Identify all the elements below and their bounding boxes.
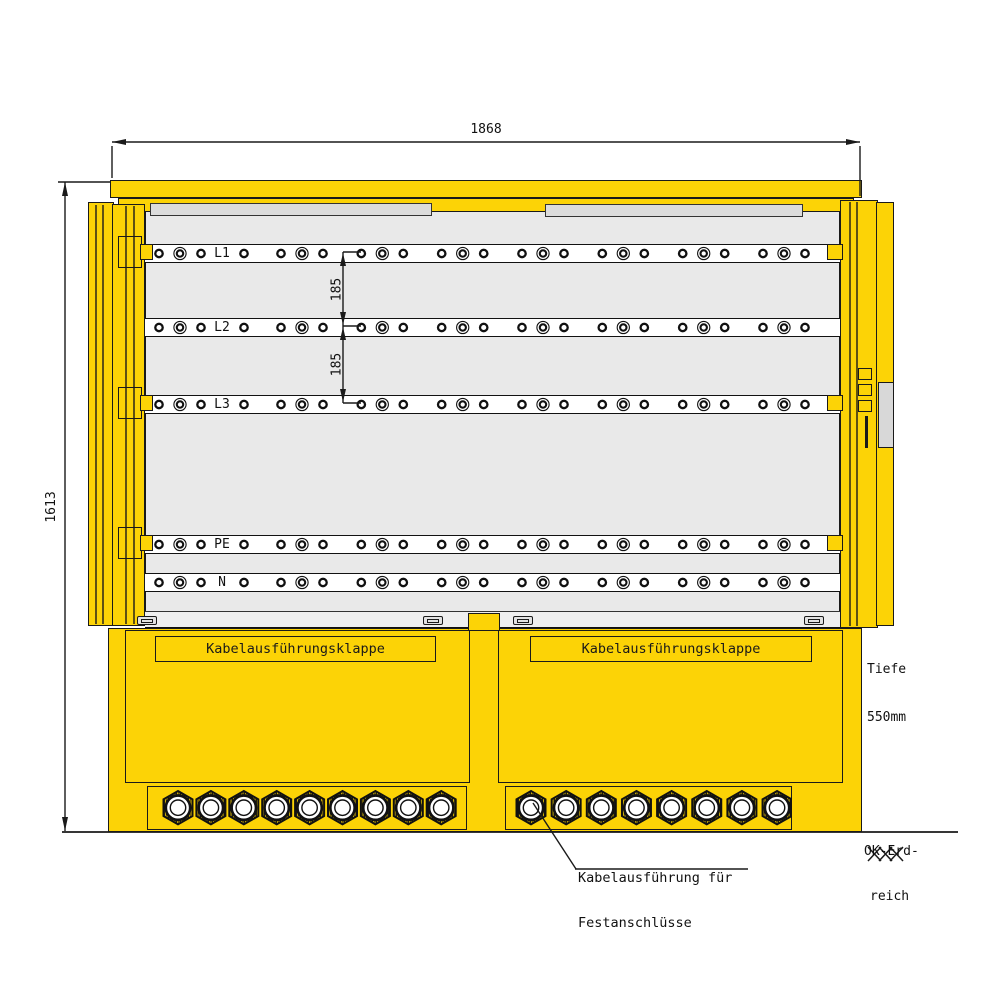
cable-gland — [692, 791, 721, 824]
interior-top-rail-left — [150, 203, 432, 216]
hinge-left — [118, 527, 142, 559]
cable-gland — [262, 791, 291, 824]
cable-gland — [328, 791, 357, 824]
depth-note-line2: 550mm — [867, 710, 906, 726]
flap-latch[interactable] — [513, 616, 533, 625]
dim-spacing-label-2: 185 — [330, 338, 345, 392]
depth-note: Tiefe 550mm — [867, 630, 906, 758]
gland-row — [147, 786, 467, 830]
lock-block-1 — [858, 368, 872, 380]
flap-latch[interactable] — [137, 616, 157, 625]
busbar-holes — [145, 396, 840, 413]
cable-gland — [196, 791, 225, 824]
hinge-left-tab — [140, 395, 153, 411]
cable-gland — [295, 791, 324, 824]
callout-line2: Festanschlüsse — [578, 916, 732, 931]
door-handle — [878, 382, 894, 448]
gland-row — [505, 786, 792, 830]
ground-note-line2: reich — [864, 889, 919, 904]
busbar-label: N — [203, 575, 241, 590]
hinge-left — [118, 236, 142, 268]
busbar-L1: L1 — [145, 244, 840, 263]
cable-gland — [361, 791, 390, 824]
left-door-edge — [88, 202, 114, 626]
interior-top-rail-right — [545, 204, 803, 217]
cable-gland — [587, 791, 616, 824]
callout-line1: Kabelausführung für — [578, 871, 732, 886]
busbar-label: PE — [203, 537, 241, 552]
cable-flap-left[interactable]: Kabelausführungsklappe — [155, 636, 436, 662]
busbar-L3: L3 — [145, 395, 840, 414]
cabinet-roof — [110, 180, 862, 198]
busbar-N: N — [145, 573, 840, 592]
busbar-holes — [145, 574, 840, 591]
cable-gland — [727, 791, 756, 824]
busbar-holes — [145, 245, 840, 262]
cable-gland — [427, 791, 456, 824]
flap-latch[interactable] — [423, 616, 443, 625]
busbar-label: L1 — [203, 246, 241, 261]
flap-latch[interactable] — [804, 616, 824, 625]
hinge-left-tab — [140, 535, 153, 551]
hinge-left — [118, 387, 142, 419]
depth-note-line1: Tiefe — [867, 662, 906, 678]
dim-width-label: 1868 — [440, 122, 532, 137]
busbar-holes — [145, 536, 840, 553]
cable-gland — [657, 791, 686, 824]
callout-note: Kabelausführung für Festanschlüsse — [578, 841, 732, 961]
cable-gland — [622, 791, 651, 824]
cable-flap-right[interactable]: Kabelausführungsklappe — [530, 636, 812, 662]
lock-block-3 — [858, 400, 872, 412]
cable-gland — [763, 791, 792, 824]
busbar-L2: L2 — [145, 318, 840, 337]
right-frame — [840, 200, 878, 628]
lock-slot — [865, 416, 868, 448]
busbar-label: L3 — [203, 397, 241, 412]
cable-gland — [394, 791, 423, 824]
ground-note-line1: OK-Erd- — [864, 844, 919, 859]
hinge-right-tab — [827, 244, 843, 260]
cable-gland — [517, 791, 546, 824]
cabinet-interior — [145, 212, 840, 628]
center-top-tab — [468, 613, 500, 631]
cable-flap-right-label: Kabelausführungsklappe — [582, 641, 761, 657]
dim-height-label: 1613 — [44, 475, 60, 539]
dim-spacing-label-1: 185 — [330, 263, 345, 317]
ground-note: OK-Erd- reich — [864, 814, 919, 934]
technical-drawing-cable-cabinet: Kabelausführungsklappe Kabelausführungsk… — [0, 0, 1000, 1000]
hinge-right-tab — [827, 395, 843, 411]
cable-gland — [552, 791, 581, 824]
cable-gland — [229, 791, 258, 824]
busbar-label: L2 — [203, 320, 241, 335]
hinge-left-tab — [140, 244, 153, 260]
lock-block-2 — [858, 384, 872, 396]
cable-gland — [164, 791, 193, 824]
hinge-right-tab — [827, 535, 843, 551]
busbar-holes — [145, 319, 840, 336]
busbar-PE: PE — [145, 535, 840, 554]
cable-flap-left-label: Kabelausführungsklappe — [206, 641, 385, 657]
